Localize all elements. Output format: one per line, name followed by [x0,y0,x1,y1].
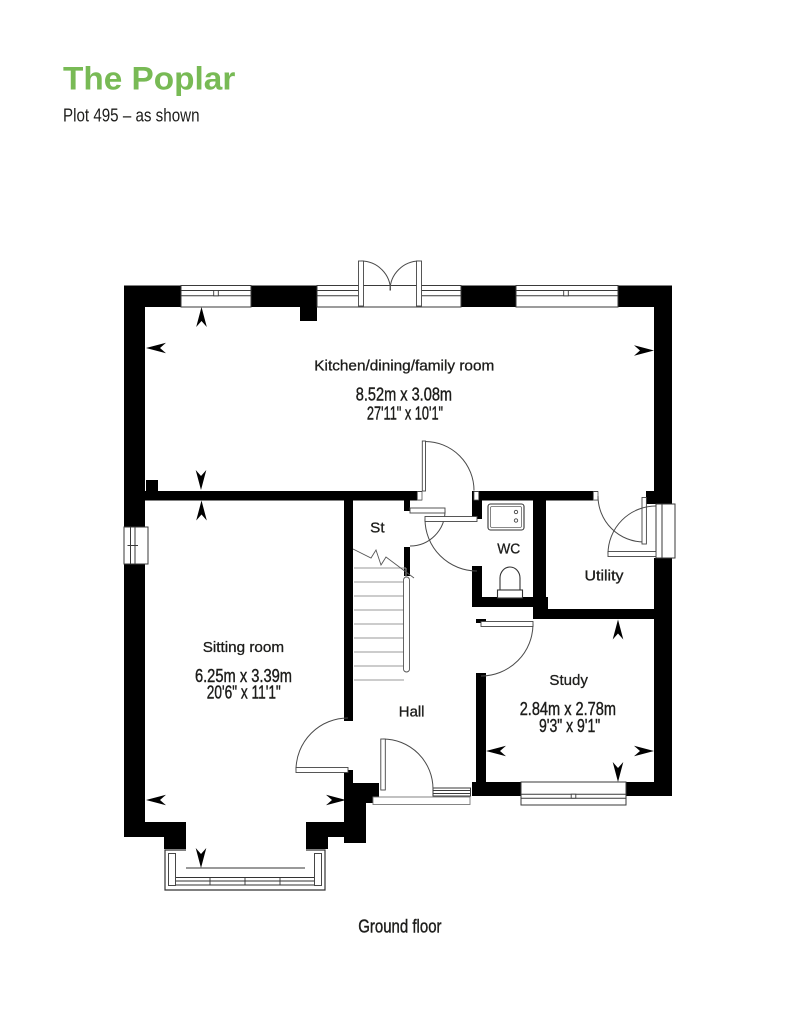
svg-text:Ground floor: Ground floor [358,917,441,937]
svg-text:Hall: Hall [399,705,425,721]
svg-text:9'3" x 9'1": 9'3" x 9'1" [539,716,600,736]
svg-text:The Poplar: The Poplar [63,61,235,97]
svg-text:8.52m x 3.08m: 8.52m x 3.08m [356,385,452,405]
svg-text:Study: Study [549,673,588,689]
svg-text:Sitting room: Sitting room [203,640,284,656]
svg-text:WC: WC [497,542,520,558]
svg-text:Kitchen/dining/family room: Kitchen/dining/family room [314,359,494,375]
svg-text:20'6" x 11'1": 20'6" x 11'1" [207,682,281,702]
svg-text:Utility: Utility [585,569,625,585]
svg-text:27'11" x 10'1": 27'11" x 10'1" [367,404,443,424]
svg-text:St: St [370,521,384,537]
svg-text:Plot 495 – as shown: Plot 495 – as shown [63,106,200,126]
